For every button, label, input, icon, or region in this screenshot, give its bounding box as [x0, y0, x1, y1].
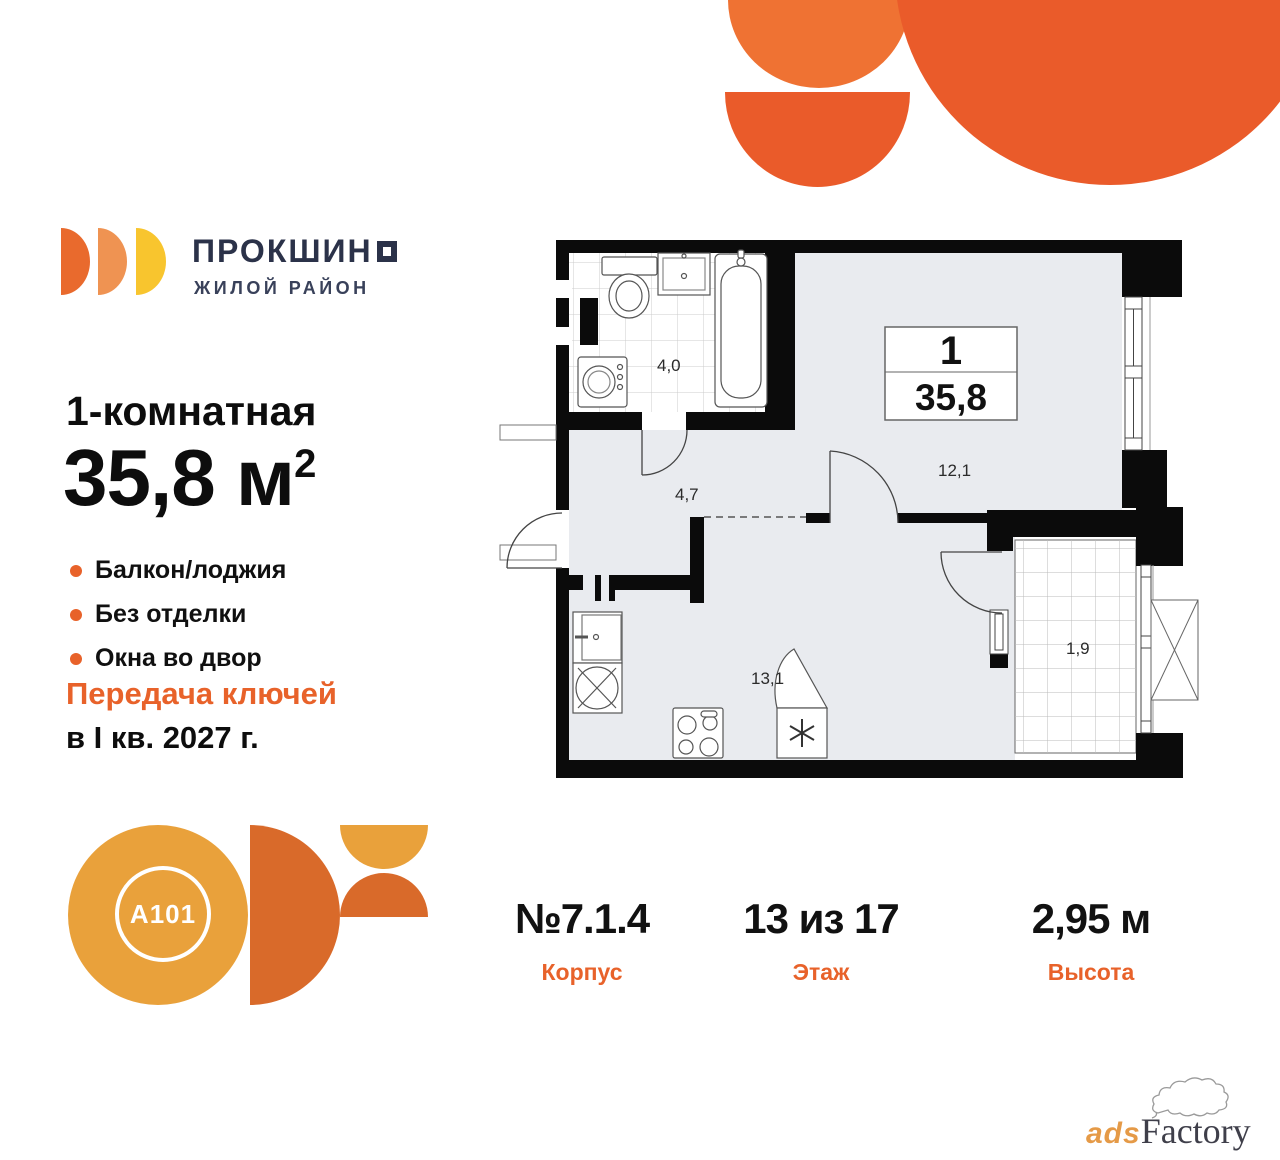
- watermark-factory: Factory: [1141, 1111, 1251, 1151]
- feature-item: Окна во двор: [70, 644, 286, 673]
- floor-plan: 1 35,8 4,0 4,7 12,1 13,1 1,9: [495, 236, 1205, 786]
- unit-rooms-count: 1: [940, 329, 962, 373]
- kitchen-sink-icon: [573, 612, 622, 663]
- a101-halfdisc-icon: [250, 825, 340, 1005]
- landing-wall-stubs: [500, 425, 556, 560]
- window-living: [1125, 297, 1150, 450]
- bathtub-icon: [715, 250, 767, 407]
- wall-notch: [556, 280, 572, 298]
- bullet-dot-icon: [70, 653, 82, 665]
- unit-area-value: 35,8: [915, 377, 987, 418]
- info-building: №7.1.4 Корпус: [515, 895, 649, 986]
- room-label-balcony: 1,9: [1066, 639, 1090, 658]
- building-number: №7.1.4: [515, 895, 649, 943]
- info-floor: 13 из 17 Этаж: [743, 895, 898, 986]
- area-value: 35,8: [63, 433, 215, 522]
- a101-badge: A101: [130, 899, 196, 930]
- listing-area: 35,8 м2: [63, 432, 315, 524]
- ac-basket-icon: [1151, 600, 1198, 700]
- feature-label: Окна во двор: [95, 644, 262, 673]
- brand-name: ПРОКШИН: [192, 233, 397, 270]
- unit-info-box: 1 35,8: [885, 327, 1017, 420]
- area-sup: 2: [294, 442, 315, 486]
- bullet-dot-icon: [70, 565, 82, 577]
- feature-item: Балкон/лоджия: [70, 556, 286, 585]
- sink-icon: [658, 253, 710, 295]
- a101-small-bottom-icon: [340, 873, 428, 917]
- logo-square-o-icon: [377, 241, 397, 262]
- room-label-kitchen: 13,1: [751, 669, 784, 688]
- feature-item: Без отделки: [70, 600, 286, 629]
- handover-line2: в I кв. 2027 г.: [66, 720, 259, 756]
- a101-small-top-icon: [340, 825, 428, 869]
- watermark-text: adsFactory: [1086, 1110, 1251, 1152]
- washing-machine-icon: [578, 357, 627, 407]
- building-label: Корпус: [515, 959, 649, 986]
- feature-label: Без отделки: [95, 600, 246, 629]
- decor-big-circle-icon: [895, 0, 1280, 185]
- listing-title: 1-комнатная: [66, 388, 316, 435]
- watermark-ads: ads: [1086, 1117, 1141, 1150]
- feature-label: Балкон/лоджия: [95, 556, 286, 585]
- brand-halfdisc-lightorange-icon: [98, 228, 127, 295]
- info-height: 2,95 м Высота: [1032, 895, 1150, 986]
- brand-halfdisc-orange-icon: [61, 228, 90, 295]
- ceiling-height: 2,95 м: [1032, 895, 1150, 943]
- bullet-dot-icon: [70, 609, 82, 621]
- watermark: adsFactory: [1086, 1077, 1276, 1152]
- a101-ring-icon: A101: [115, 866, 211, 962]
- decor-semicircle-dark-icon: [725, 92, 910, 187]
- decor-semicircle-light-icon: [728, 0, 910, 88]
- balcony-block-window: [990, 610, 1008, 654]
- room-label-living: 12,1: [938, 461, 971, 480]
- kitchen-cabinet-x-icon: [573, 663, 622, 713]
- promo-card: { "brand": { "logo_text": "ПРОКШИН", "lo…: [0, 0, 1280, 1160]
- area-unit: м: [215, 433, 294, 522]
- floor-number: 13 из 17: [743, 895, 898, 943]
- room-label-bathroom: 4,0: [657, 356, 681, 375]
- wall-notch: [556, 327, 572, 345]
- brand-name-text: ПРОКШИН: [192, 233, 373, 270]
- floor-label: Этаж: [743, 959, 898, 986]
- handover-line1: Передача ключей: [66, 676, 337, 712]
- room-label-hallway: 4,7: [675, 485, 699, 504]
- brand-halfdisc-yellow-icon: [136, 228, 166, 295]
- feature-list: Балкон/лоджия Без отделки Окна во двор: [70, 556, 286, 688]
- height-label: Высота: [1032, 959, 1150, 986]
- brand-subtitle: ЖИЛОЙ РАЙОН: [194, 278, 370, 299]
- stove-icon: [673, 708, 723, 758]
